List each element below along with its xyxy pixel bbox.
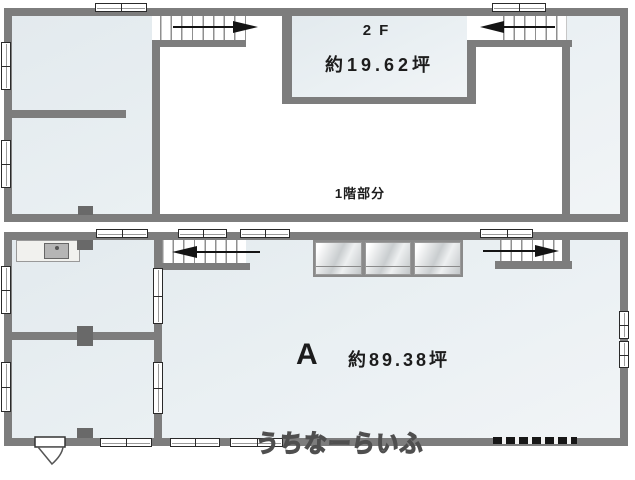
interior-wall xyxy=(467,40,572,47)
window xyxy=(178,229,227,238)
outer-wall xyxy=(620,232,628,446)
outer-wall xyxy=(620,8,628,222)
floor-area-label: 約19.62坪 xyxy=(282,51,477,77)
glass-panel xyxy=(365,242,412,275)
window xyxy=(170,438,220,447)
window xyxy=(95,3,147,12)
interior-wall xyxy=(562,240,570,261)
interior-wall xyxy=(152,40,160,214)
interior-wall xyxy=(12,110,126,118)
window xyxy=(619,311,629,339)
interior-wall xyxy=(495,261,572,269)
interior-wall xyxy=(282,97,476,104)
pillar xyxy=(78,206,93,215)
stair-arrow-left-icon xyxy=(170,246,262,258)
window xyxy=(480,229,533,238)
shutter-strip xyxy=(493,437,577,444)
kitchen-sink-icon xyxy=(44,243,69,259)
window xyxy=(1,266,11,314)
floor-label: 2F xyxy=(292,22,467,39)
window xyxy=(1,362,11,412)
interior-wall xyxy=(152,40,246,47)
window xyxy=(1,140,11,188)
window xyxy=(153,268,163,324)
window xyxy=(100,438,152,447)
pillar xyxy=(77,428,93,438)
pillar xyxy=(77,240,93,250)
stair-arrow-right-icon xyxy=(170,21,260,33)
stair-arrow-right-icon xyxy=(481,245,561,257)
unit-label: A xyxy=(296,338,318,372)
outer-wall xyxy=(4,214,628,222)
window xyxy=(1,42,11,90)
storefront-windows xyxy=(313,240,463,277)
interior-wall xyxy=(162,263,250,270)
unit-area-label: 約89.38坪 xyxy=(348,346,450,372)
floorplan-canvas: 2F 約19.62坪 1階部分 xyxy=(0,0,635,480)
glass-panel xyxy=(414,242,461,275)
void-label: 1階部分 xyxy=(310,183,410,202)
pillar xyxy=(77,326,93,346)
stair-arrow-left-icon xyxy=(478,21,558,33)
outer-wall xyxy=(4,8,12,222)
window xyxy=(619,341,629,368)
window xyxy=(492,3,546,12)
interior-wall xyxy=(562,45,570,214)
window xyxy=(153,362,163,414)
upper-floor-plan: 2F 約19.62坪 1階部分 xyxy=(0,0,635,232)
entrance-door-icon xyxy=(34,436,68,466)
watermark: うちなーらいふ xyxy=(255,423,426,460)
glass-panel xyxy=(315,242,362,275)
kitchen-counter xyxy=(16,240,80,262)
outer-wall xyxy=(4,232,12,446)
window xyxy=(96,229,148,238)
window xyxy=(240,229,290,238)
